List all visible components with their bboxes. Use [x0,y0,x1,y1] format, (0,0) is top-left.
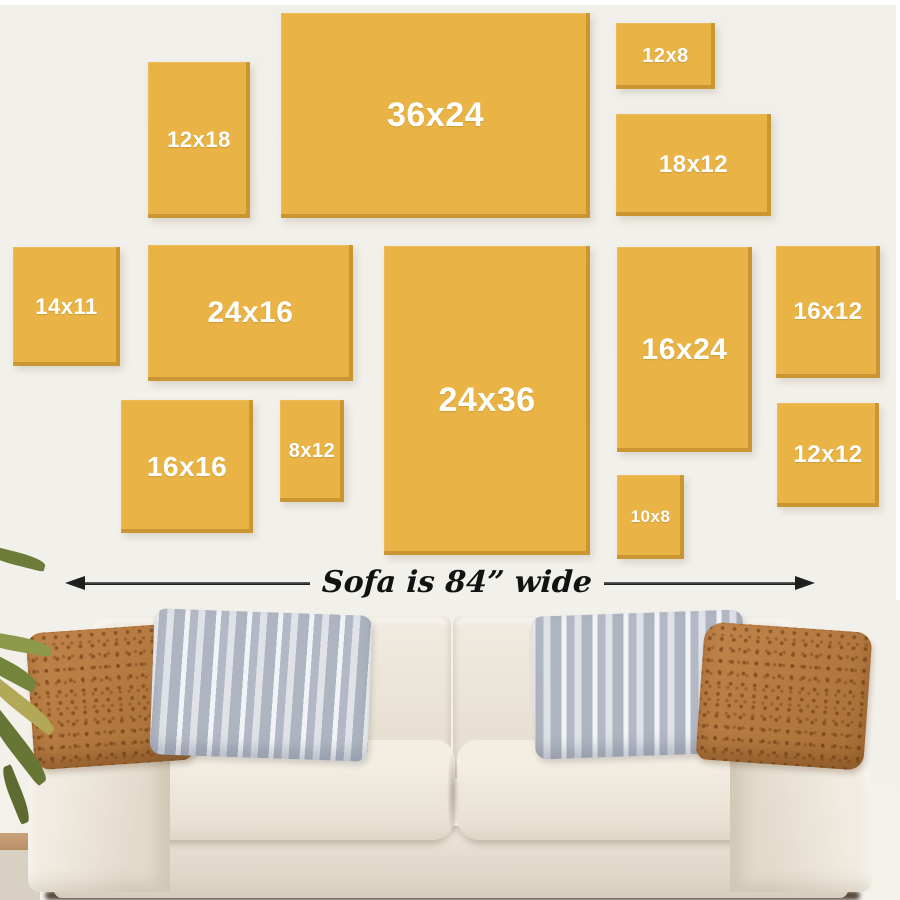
image-border-right [896,0,900,600]
arrow-right-icon [795,576,815,590]
canvas-size-label: 12x12 [793,441,862,469]
sofa-width-dimension: Sofa is 84” wide [65,568,815,598]
canvas-panel-12x8: 12x8 [616,23,715,89]
dimension-line-right [604,582,795,585]
canvas-panel-18x12: 18x12 [616,114,771,216]
canvas-size-label: 24x16 [208,296,294,330]
canvas-panel-16x24: 16x24 [617,247,752,452]
rust-pillow-right [695,621,872,770]
sofa-seat-seam [447,748,459,838]
canvas-size-label: 16x24 [642,333,728,367]
canvas-size-label: 12x18 [167,127,231,153]
canvas-size-label: 12x8 [642,45,689,68]
image-border-top [0,0,900,5]
canvas-panel-8x12: 8x12 [280,400,344,502]
canvas-panel-16x16: 16x16 [121,400,253,533]
gray-striped-pillow-left [150,608,373,762]
canvas-panel-24x36: 24x36 [384,246,590,555]
canvas-panel-16x12: 16x12 [776,246,880,378]
canvas-size-label: 16x12 [793,298,862,326]
canvas-size-label: 36x24 [387,96,484,135]
canvas-panel-12x18: 12x18 [148,62,250,218]
canvas-panel-12x12: 12x12 [777,403,879,507]
sofa-width-label: Sofa is 84” wide [309,568,605,598]
canvas-size-label: 24x36 [438,381,535,420]
size-guide-scene: 12x18 36x24 12x8 18x12 14x11 24x16 24x36… [0,0,900,900]
canvas-panel-36x24: 36x24 [281,13,590,218]
canvas-size-label: 10x8 [631,507,671,527]
arrow-left-icon [65,576,85,590]
canvas-panel-24x16: 24x16 [148,245,353,381]
plant-leaf [0,545,47,572]
dimension-line-left [85,582,310,585]
canvas-size-label: 8x12 [289,440,336,463]
canvas-size-label: 18x12 [659,151,728,179]
canvas-panel-10x8: 10x8 [617,475,684,559]
canvas-panel-14x11: 14x11 [13,247,120,366]
canvas-size-label: 16x16 [147,451,227,483]
canvas-size-label: 14x11 [35,294,97,320]
